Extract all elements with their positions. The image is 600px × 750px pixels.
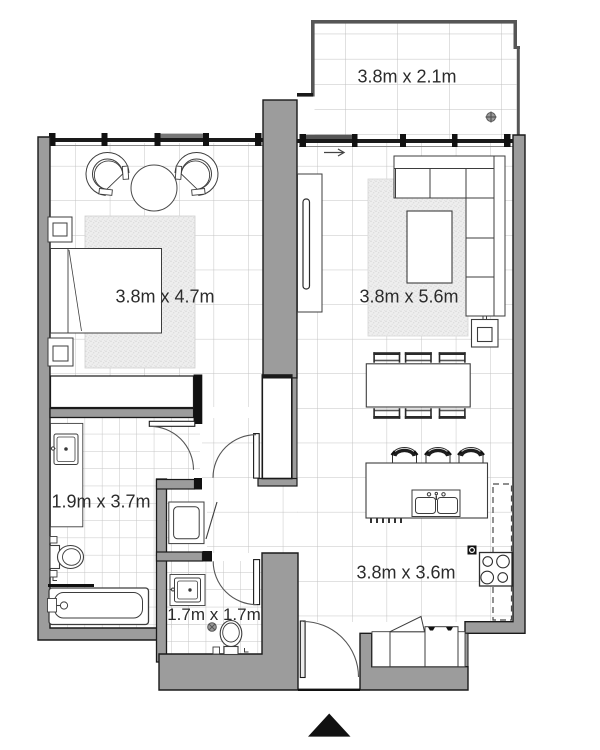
svg-text:1.9m x 3.7m: 1.9m x 3.7m bbox=[51, 492, 150, 512]
svg-text:3.8m x 4.7m: 3.8m x 4.7m bbox=[115, 287, 214, 307]
svg-text:3.8m x 2.1m: 3.8m x 2.1m bbox=[357, 67, 456, 87]
svg-text:1.7m x 1.7m: 1.7m x 1.7m bbox=[167, 605, 261, 624]
svg-text:3.8m x 5.6m: 3.8m x 5.6m bbox=[359, 287, 458, 307]
svg-text:3.8m x 3.6m: 3.8m x 3.6m bbox=[356, 563, 455, 583]
